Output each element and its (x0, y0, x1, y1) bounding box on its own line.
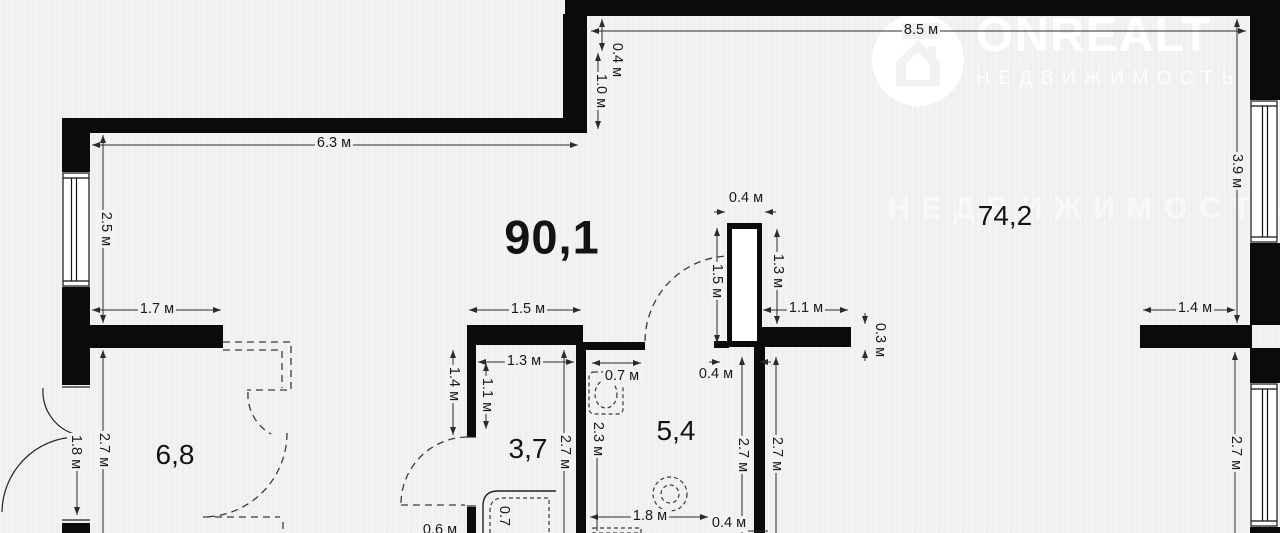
area-label-small-room: 3,7 (509, 435, 548, 463)
walls-layer (62, 0, 1280, 533)
hall-door-swing-large (203, 433, 287, 533)
wall-shaft-stub (714, 341, 729, 348)
dim-basin-nook-width: 0.7 м (603, 369, 641, 385)
dim-living-lower-height: 2.7 м (768, 435, 784, 473)
dim-left-height: 2.5 м (97, 210, 113, 248)
wall-closet-top (467, 325, 583, 345)
dim-hall-top-width: 1.7 м (138, 302, 176, 318)
dim-shaft-bottom-gap: 0.4 м (697, 367, 735, 383)
wall-bath-thin (583, 342, 645, 350)
window-right-upper (1250, 100, 1278, 243)
wall-left-stub (62, 523, 90, 533)
shower-outline (483, 491, 556, 533)
dashed-partition (223, 342, 291, 390)
dim-shaft-right-height: 1.3 м (769, 252, 785, 290)
dim-bath-left-height: 2.3 м (589, 420, 605, 458)
area-label-hall: 6,8 (156, 441, 195, 469)
dim-hall-height: 2.7 м (95, 431, 111, 469)
wall-room-divider (576, 345, 586, 533)
entry-door-leaf-small (43, 388, 74, 434)
dim-closet-wall-width: 1.5 м (509, 302, 547, 318)
wall-bath-right (754, 347, 765, 533)
entry-door-swing-arc (2, 437, 75, 512)
dimension-lines-layer (77, 19, 1246, 533)
dim-wall-offset: 0.4 м (608, 41, 624, 79)
dim-bottom-cut: 0.6 м (421, 523, 459, 533)
dim-top-inset: 1.0 м (592, 72, 608, 110)
dim-closet-inner-height: 1.1 м (478, 376, 494, 414)
dim-right-nook-width: 1.4 м (1176, 301, 1214, 317)
area-label-bathroom: 5,4 (657, 417, 696, 445)
window-left (62, 172, 90, 287)
dim-window-height: 2.7 м (1227, 434, 1243, 472)
dim-closet-left-height: 1.4 м (445, 365, 461, 403)
dim-ledge-thickness: 0.3 м (871, 321, 887, 359)
dim-shaft-width: 0.4 м (727, 191, 765, 207)
dim-upper-left-width: 6.3 м (315, 136, 353, 152)
wall-right-lower (1250, 348, 1280, 383)
wall-left-b (62, 287, 90, 385)
small-room-door-swing-arc (401, 437, 467, 505)
wall-small-room-left-stub (467, 507, 476, 533)
hall-door-swing-small (248, 392, 271, 434)
dim-ledge-width: 1.1 м (787, 301, 825, 317)
window-right-lower (1250, 383, 1278, 527)
dim-small-room-height: 2.7 м (556, 433, 572, 471)
dim-small-room-width: 1.3 м (505, 354, 543, 370)
wall-hall-top (90, 325, 223, 348)
dim-shower-width: 0.7 (495, 504, 511, 528)
dashed-layer (203, 256, 728, 533)
dim-bath-corner: 0.4 м (710, 516, 748, 532)
dim-entry-door-width: 1.8 м (67, 433, 83, 471)
dim-shaft-height: 1.5 м (708, 262, 724, 300)
area-label-total: 90,1 (504, 214, 599, 261)
dim-bath-height: 2.7 м (734, 436, 750, 474)
wall-ledge (760, 327, 851, 347)
wall-right-nook (1140, 325, 1252, 348)
floorplan-canvas: ONREALT НЕДВИЖИМОСТЬ НЕДВИЖИМОСТЬ (0, 0, 1280, 533)
wall-left-a (62, 133, 90, 172)
dim-top-width: 8.5 м (902, 23, 940, 39)
area-label-living: 74,2 (978, 202, 1033, 230)
wall-top-step (563, 14, 587, 133)
wall-right-bottom (1250, 527, 1280, 533)
windows-layer (62, 100, 1278, 527)
wall-right-upper (1250, 16, 1280, 100)
wall-top (565, 0, 1280, 16)
dim-bath-width: 1.8 м (631, 509, 669, 525)
dim-right-height: 3.9 м (1228, 152, 1244, 190)
wall-right-mid (1250, 243, 1280, 325)
wall-upper-left (62, 118, 580, 133)
duct-shaft-inner (732, 229, 757, 341)
wall-small-room-left (467, 345, 476, 437)
